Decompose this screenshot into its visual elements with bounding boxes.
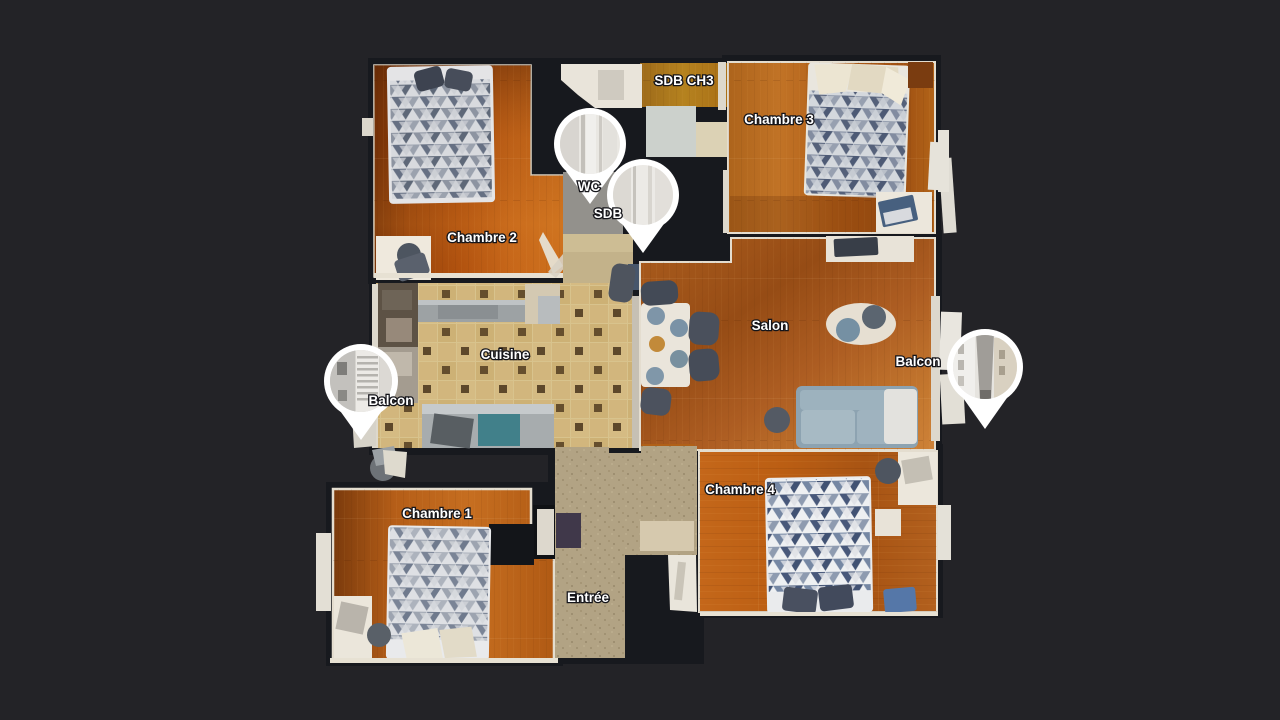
svg-text:Chambre 3: Chambre 3 <box>744 112 814 127</box>
svg-text:Chambre 4: Chambre 4 <box>705 482 775 497</box>
svg-text:SDB: SDB <box>594 206 623 221</box>
svg-text:Salon: Salon <box>752 318 789 333</box>
svg-text:SDB CH3: SDB CH3 <box>654 73 714 88</box>
svg-text:WC: WC <box>578 179 601 194</box>
svg-text:Chambre 2: Chambre 2 <box>447 230 517 245</box>
svg-text:Cuisine: Cuisine <box>481 347 530 362</box>
svg-text:Chambre 1: Chambre 1 <box>402 506 472 521</box>
svg-text:Balcon: Balcon <box>895 354 940 369</box>
svg-text:Entrée: Entrée <box>567 590 610 605</box>
svg-text:Balcon: Balcon <box>368 393 413 408</box>
